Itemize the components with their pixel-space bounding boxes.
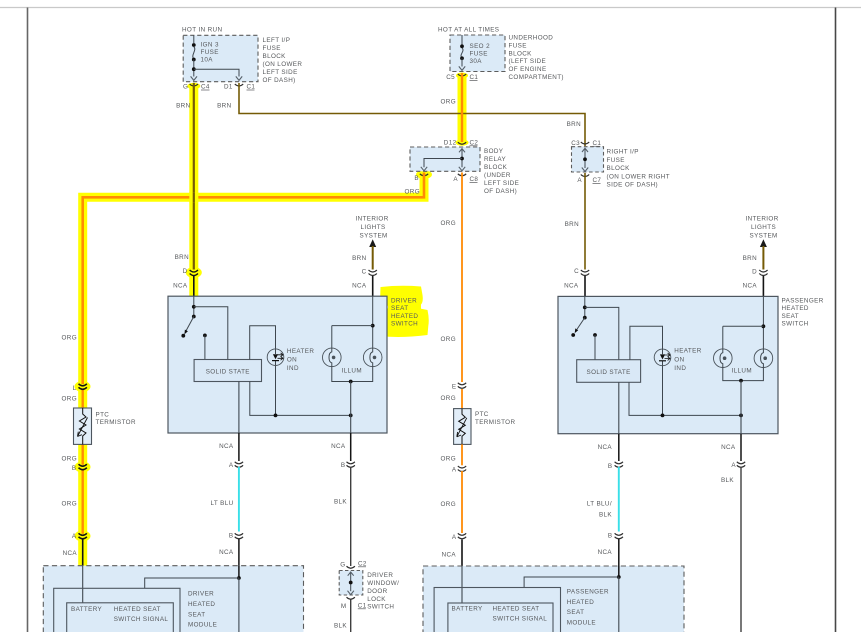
svg-text:HOT AT ALL TIMES: HOT AT ALL TIMES bbox=[438, 27, 499, 34]
svg-text:TERMISTOR: TERMISTOR bbox=[475, 419, 515, 426]
svg-text:E: E bbox=[452, 384, 457, 391]
svg-text:HEATED SEAT: HEATED SEAT bbox=[114, 606, 161, 613]
svg-text:RELAY: RELAY bbox=[484, 156, 507, 163]
svg-text:SWITCH: SWITCH bbox=[782, 321, 809, 328]
svg-text:IND: IND bbox=[287, 365, 299, 372]
svg-text:C1: C1 bbox=[247, 84, 256, 91]
svg-text:NCA: NCA bbox=[721, 444, 736, 451]
svg-text:FUSE: FUSE bbox=[263, 45, 281, 52]
svg-text:C2: C2 bbox=[470, 139, 479, 146]
svg-text:ORG: ORG bbox=[405, 189, 420, 196]
svg-text:C: C bbox=[362, 268, 367, 275]
svg-text:SIDE OF DASH): SIDE OF DASH) bbox=[607, 182, 658, 189]
svg-text:G: G bbox=[183, 84, 188, 91]
svg-text:D1: D1 bbox=[224, 84, 233, 91]
svg-text:(UNDER: (UNDER bbox=[484, 172, 511, 179]
svg-text:FUSE: FUSE bbox=[607, 157, 625, 164]
svg-text:HOT IN RUN: HOT IN RUN bbox=[182, 27, 222, 34]
svg-text:C: C bbox=[574, 268, 579, 275]
svg-text:HEATER: HEATER bbox=[287, 348, 314, 355]
svg-text:ORG: ORG bbox=[62, 334, 77, 341]
svg-text:DRIVER: DRIVER bbox=[188, 591, 214, 598]
svg-text:NCA: NCA bbox=[598, 549, 613, 556]
svg-text:ORG: ORG bbox=[441, 336, 456, 343]
svg-text:ORG: ORG bbox=[441, 395, 456, 402]
svg-text:(ON LOWER RIGHT: (ON LOWER RIGHT bbox=[607, 173, 670, 180]
svg-text:HEATER: HEATER bbox=[674, 348, 701, 355]
svg-text:MODULE: MODULE bbox=[188, 622, 217, 629]
svg-text:MODULE: MODULE bbox=[567, 619, 596, 626]
svg-text:IND: IND bbox=[674, 365, 686, 372]
svg-text:LEFT I/P: LEFT I/P bbox=[263, 37, 291, 44]
svg-text:ON: ON bbox=[287, 357, 297, 364]
svg-text:NCA: NCA bbox=[743, 283, 758, 290]
svg-text:BRN: BRN bbox=[217, 103, 232, 110]
svg-text:BRN: BRN bbox=[175, 254, 190, 261]
svg-text:C2: C2 bbox=[358, 560, 367, 567]
svg-text:HEATED SEAT: HEATED SEAT bbox=[493, 605, 540, 612]
svg-text:LEFT SIDE: LEFT SIDE bbox=[484, 180, 519, 187]
svg-text:C4: C4 bbox=[201, 84, 210, 91]
svg-text:B: B bbox=[608, 533, 613, 540]
svg-text:BODY: BODY bbox=[484, 148, 504, 155]
svg-text:BRN: BRN bbox=[565, 221, 580, 228]
svg-text:BLOCK: BLOCK bbox=[509, 50, 533, 57]
svg-text:(LEFT SIDE: (LEFT SIDE bbox=[509, 58, 547, 65]
svg-text:LIGHTS: LIGHTS bbox=[751, 224, 776, 231]
svg-text:A: A bbox=[577, 177, 582, 184]
svg-text:INTERIOR: INTERIOR bbox=[746, 216, 779, 223]
svg-text:30A: 30A bbox=[470, 58, 483, 65]
svg-text:WINDOW/: WINDOW/ bbox=[367, 580, 399, 587]
svg-text:BRN: BRN bbox=[743, 255, 758, 262]
svg-text:PASSENGER: PASSENGER bbox=[567, 589, 609, 596]
svg-text:NCA: NCA bbox=[564, 283, 579, 290]
svg-text:HEATED: HEATED bbox=[567, 599, 594, 606]
svg-text:LT BLU: LT BLU bbox=[210, 500, 233, 507]
svg-text:RIGHT I/P: RIGHT I/P bbox=[607, 149, 639, 156]
svg-text:(ON LOWER: (ON LOWER bbox=[263, 61, 303, 68]
svg-text:C3: C3 bbox=[571, 140, 580, 147]
svg-text:INTERIOR: INTERIOR bbox=[356, 216, 389, 223]
svg-text:HEATED: HEATED bbox=[782, 305, 809, 312]
svg-text:LIGHTS: LIGHTS bbox=[361, 224, 386, 231]
svg-text:A: A bbox=[731, 462, 736, 469]
svg-text:ORG: ORG bbox=[62, 501, 77, 508]
svg-text:NCA: NCA bbox=[442, 551, 457, 558]
svg-text:A: A bbox=[452, 467, 457, 474]
svg-text:C8: C8 bbox=[470, 176, 479, 183]
svg-text:PASSENGER: PASSENGER bbox=[782, 297, 824, 304]
svg-text:SEAT: SEAT bbox=[567, 609, 585, 616]
svg-text:ILLUM: ILLUM bbox=[342, 368, 362, 375]
svg-text:D: D bbox=[752, 268, 757, 275]
svg-text:PTC: PTC bbox=[96, 411, 110, 418]
svg-text:ORG: ORG bbox=[441, 220, 456, 227]
svg-text:SWITCH SIGNAL: SWITCH SIGNAL bbox=[114, 616, 169, 623]
svg-text:NCA: NCA bbox=[63, 550, 78, 557]
svg-text:NCA: NCA bbox=[331, 443, 346, 450]
svg-text:L: L bbox=[73, 385, 77, 392]
svg-text:A: A bbox=[229, 462, 234, 469]
svg-text:B: B bbox=[229, 533, 234, 540]
svg-text:BLK: BLK bbox=[721, 477, 734, 484]
svg-text:IGN 3: IGN 3 bbox=[201, 42, 219, 49]
svg-text:C1: C1 bbox=[358, 602, 367, 609]
svg-text:ORG: ORG bbox=[441, 501, 456, 508]
svg-text:COMPARTMENT): COMPARTMENT) bbox=[509, 74, 564, 81]
svg-text:LEFT SIDE: LEFT SIDE bbox=[263, 69, 298, 76]
svg-text:BATTERY: BATTERY bbox=[71, 606, 103, 613]
svg-text:C7: C7 bbox=[593, 177, 602, 184]
svg-text:SYSTEM: SYSTEM bbox=[360, 233, 388, 240]
svg-text:FUSE: FUSE bbox=[201, 49, 219, 56]
svg-text:ON: ON bbox=[674, 356, 684, 363]
svg-text:C1: C1 bbox=[593, 140, 602, 147]
svg-text:B: B bbox=[608, 463, 613, 470]
svg-text:A: A bbox=[453, 176, 458, 183]
svg-text:D: D bbox=[183, 268, 188, 275]
svg-text:OF ENGINE: OF ENGINE bbox=[509, 66, 547, 73]
svg-text:HEATED: HEATED bbox=[188, 601, 215, 608]
svg-text:B: B bbox=[414, 175, 419, 182]
svg-text:NCA: NCA bbox=[219, 443, 234, 450]
svg-text:A: A bbox=[72, 533, 77, 540]
svg-text:SEAT: SEAT bbox=[188, 611, 206, 618]
svg-text:G: G bbox=[340, 561, 345, 568]
svg-text:OF DASH): OF DASH) bbox=[263, 77, 296, 84]
svg-text:SOLID STATE: SOLID STATE bbox=[587, 369, 631, 376]
svg-text:LOCK: LOCK bbox=[367, 596, 386, 603]
svg-text:BLK: BLK bbox=[334, 623, 347, 630]
svg-text:FUSE: FUSE bbox=[509, 42, 527, 49]
svg-text:UNDERHOOD: UNDERHOOD bbox=[509, 35, 554, 42]
svg-text:FUSE: FUSE bbox=[470, 51, 488, 58]
svg-text:DOOR: DOOR bbox=[367, 588, 387, 595]
svg-text:SYSTEM: SYSTEM bbox=[750, 233, 778, 240]
svg-text:ORG: ORG bbox=[441, 99, 456, 106]
svg-text:SEAT: SEAT bbox=[782, 313, 800, 320]
svg-text:BRN: BRN bbox=[352, 255, 367, 262]
svg-text:ILLUM: ILLUM bbox=[732, 367, 752, 374]
svg-text:PTC: PTC bbox=[475, 411, 489, 418]
svg-text:ORG: ORG bbox=[441, 456, 456, 463]
svg-text:SEO 2: SEO 2 bbox=[470, 43, 491, 50]
svg-text:B: B bbox=[341, 462, 346, 469]
svg-text:BRN: BRN bbox=[567, 121, 582, 128]
svg-text:DRIVER: DRIVER bbox=[367, 572, 393, 579]
svg-text:ORG: ORG bbox=[62, 456, 77, 463]
svg-text:B: B bbox=[72, 465, 77, 472]
svg-text:BLOCK: BLOCK bbox=[263, 53, 287, 60]
svg-text:NCA: NCA bbox=[173, 283, 188, 290]
svg-text:SWITCH: SWITCH bbox=[367, 604, 394, 611]
svg-text:SWITCH: SWITCH bbox=[391, 321, 418, 328]
svg-text:BLOCK: BLOCK bbox=[607, 165, 631, 172]
svg-text:C1: C1 bbox=[470, 74, 479, 81]
svg-text:HEATED: HEATED bbox=[391, 313, 418, 320]
svg-text:BLK: BLK bbox=[599, 512, 612, 519]
svg-text:A: A bbox=[452, 534, 457, 541]
svg-text:D12: D12 bbox=[444, 139, 457, 146]
svg-text:BLK: BLK bbox=[334, 498, 347, 505]
svg-text:BLOCK: BLOCK bbox=[484, 164, 508, 171]
svg-text:SWITCH SIGNAL: SWITCH SIGNAL bbox=[493, 616, 548, 623]
svg-text:SOLID STATE: SOLID STATE bbox=[206, 369, 250, 376]
svg-text:TERMISTOR: TERMISTOR bbox=[96, 419, 136, 426]
svg-text:NCA: NCA bbox=[598, 444, 613, 451]
svg-text:DRIVER: DRIVER bbox=[391, 297, 417, 304]
svg-text:C5: C5 bbox=[446, 74, 455, 81]
svg-text:OF DASH): OF DASH) bbox=[484, 188, 517, 195]
svg-text:SEAT: SEAT bbox=[391, 305, 409, 312]
svg-text:M: M bbox=[341, 603, 347, 610]
svg-text:10A: 10A bbox=[201, 57, 214, 64]
svg-text:NCA: NCA bbox=[352, 283, 367, 290]
svg-text:NCA: NCA bbox=[219, 549, 234, 556]
svg-text:BRN: BRN bbox=[176, 103, 191, 110]
svg-text:BATTERY: BATTERY bbox=[452, 605, 484, 612]
svg-text:LT BLU/: LT BLU/ bbox=[587, 501, 612, 508]
svg-text:ORG: ORG bbox=[62, 395, 77, 402]
